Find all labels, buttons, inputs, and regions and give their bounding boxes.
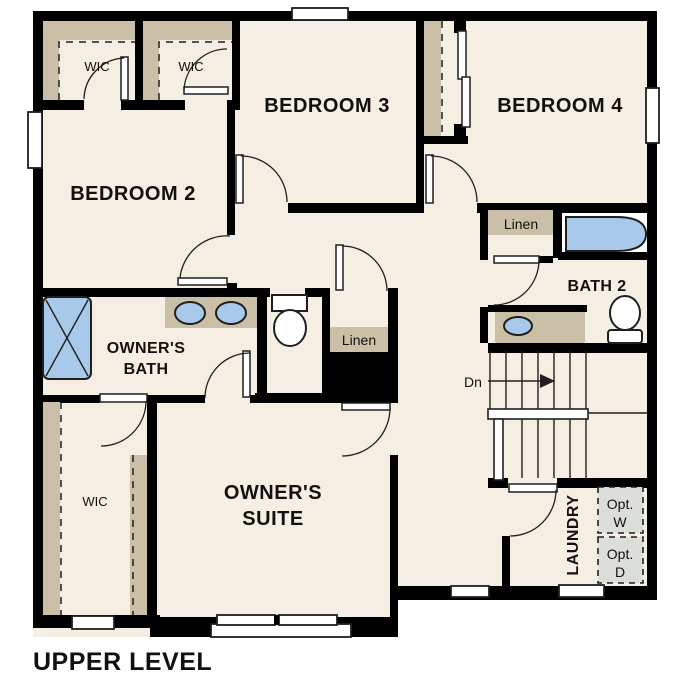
owners-suite-door xyxy=(342,403,390,410)
owners-suite-label-line1: OWNER'S xyxy=(224,482,322,504)
opt-washer-label-line2: W xyxy=(613,514,627,530)
laundry-label: LAUNDRY xyxy=(565,494,582,575)
suite-window-left xyxy=(217,615,275,625)
toilet-bath2 xyxy=(608,296,642,343)
bath2-door xyxy=(494,256,539,263)
wic1-label: WIC xyxy=(84,59,109,74)
bedroom3-window xyxy=(292,8,348,20)
bathtub xyxy=(562,213,647,252)
stair-lower-rail xyxy=(494,419,503,480)
stair-landing-rail xyxy=(488,409,588,419)
wic1-shelf-left xyxy=(43,21,59,100)
bedroom3-door xyxy=(236,155,243,203)
plan-title: UPPER LEVEL xyxy=(33,648,212,676)
laundry-door xyxy=(509,484,557,492)
bath2-label: BATH 2 xyxy=(568,278,627,295)
bedroom3-label: BEDROOM 3 xyxy=(264,95,390,117)
bedroom4-label: BEDROOM 4 xyxy=(497,95,623,117)
wic2-shelf-left xyxy=(143,21,159,100)
owners-bath-label-line1: OWNER'S xyxy=(107,340,186,357)
bath2-sink xyxy=(504,317,532,335)
shower xyxy=(43,297,91,379)
opt-dryer-label-line1: Opt. xyxy=(607,546,633,562)
toilet-owners xyxy=(272,295,307,346)
bedroom4-closet-slider-a xyxy=(458,31,466,79)
owner-wic-window xyxy=(72,616,114,629)
owners-bath-label-line2: BATH xyxy=(124,361,169,378)
owner-wic-shelf-left xyxy=(43,402,60,615)
opt-dryer-label-line2: D xyxy=(615,564,625,580)
bedroom2-door xyxy=(178,278,227,285)
opt-washer-label-line1: Opt. xyxy=(607,496,633,512)
bedroom4-window xyxy=(646,88,659,143)
owners-suite-label-line2: SUITE xyxy=(242,508,303,530)
bedroom2-label: BEDROOM 2 xyxy=(70,183,196,205)
bedroom4-closet-shelf xyxy=(424,21,441,136)
owner-wic-label: WIC xyxy=(82,494,107,509)
wic2-door xyxy=(184,87,228,94)
laundry-window xyxy=(559,585,604,597)
owners-bath-door xyxy=(243,351,250,397)
hall-linen-door xyxy=(336,245,343,290)
floor-plan-drawing: BEDROOM 2 BEDROOM 3 BEDROOM 4 WIC WIC WI… xyxy=(0,0,687,687)
bedroom2-window xyxy=(28,112,42,168)
hall-linen-label: Linen xyxy=(342,332,376,348)
bedroom4-door xyxy=(426,155,433,203)
stairs-dn-label: Dn xyxy=(464,374,482,390)
owner-wic-door xyxy=(100,394,147,402)
bath2-linen-label: Linen xyxy=(504,216,538,232)
wic2-label: WIC xyxy=(178,59,203,74)
floor-plan-page: BEDROOM 2 BEDROOM 3 BEDROOM 4 WIC WIC WI… xyxy=(0,0,687,687)
hall-window xyxy=(451,586,489,597)
suite-bay-sill xyxy=(211,624,351,637)
bedroom4-closet-slider-b xyxy=(462,77,470,127)
suite-window-right xyxy=(279,615,337,625)
wic1-door xyxy=(121,57,128,100)
